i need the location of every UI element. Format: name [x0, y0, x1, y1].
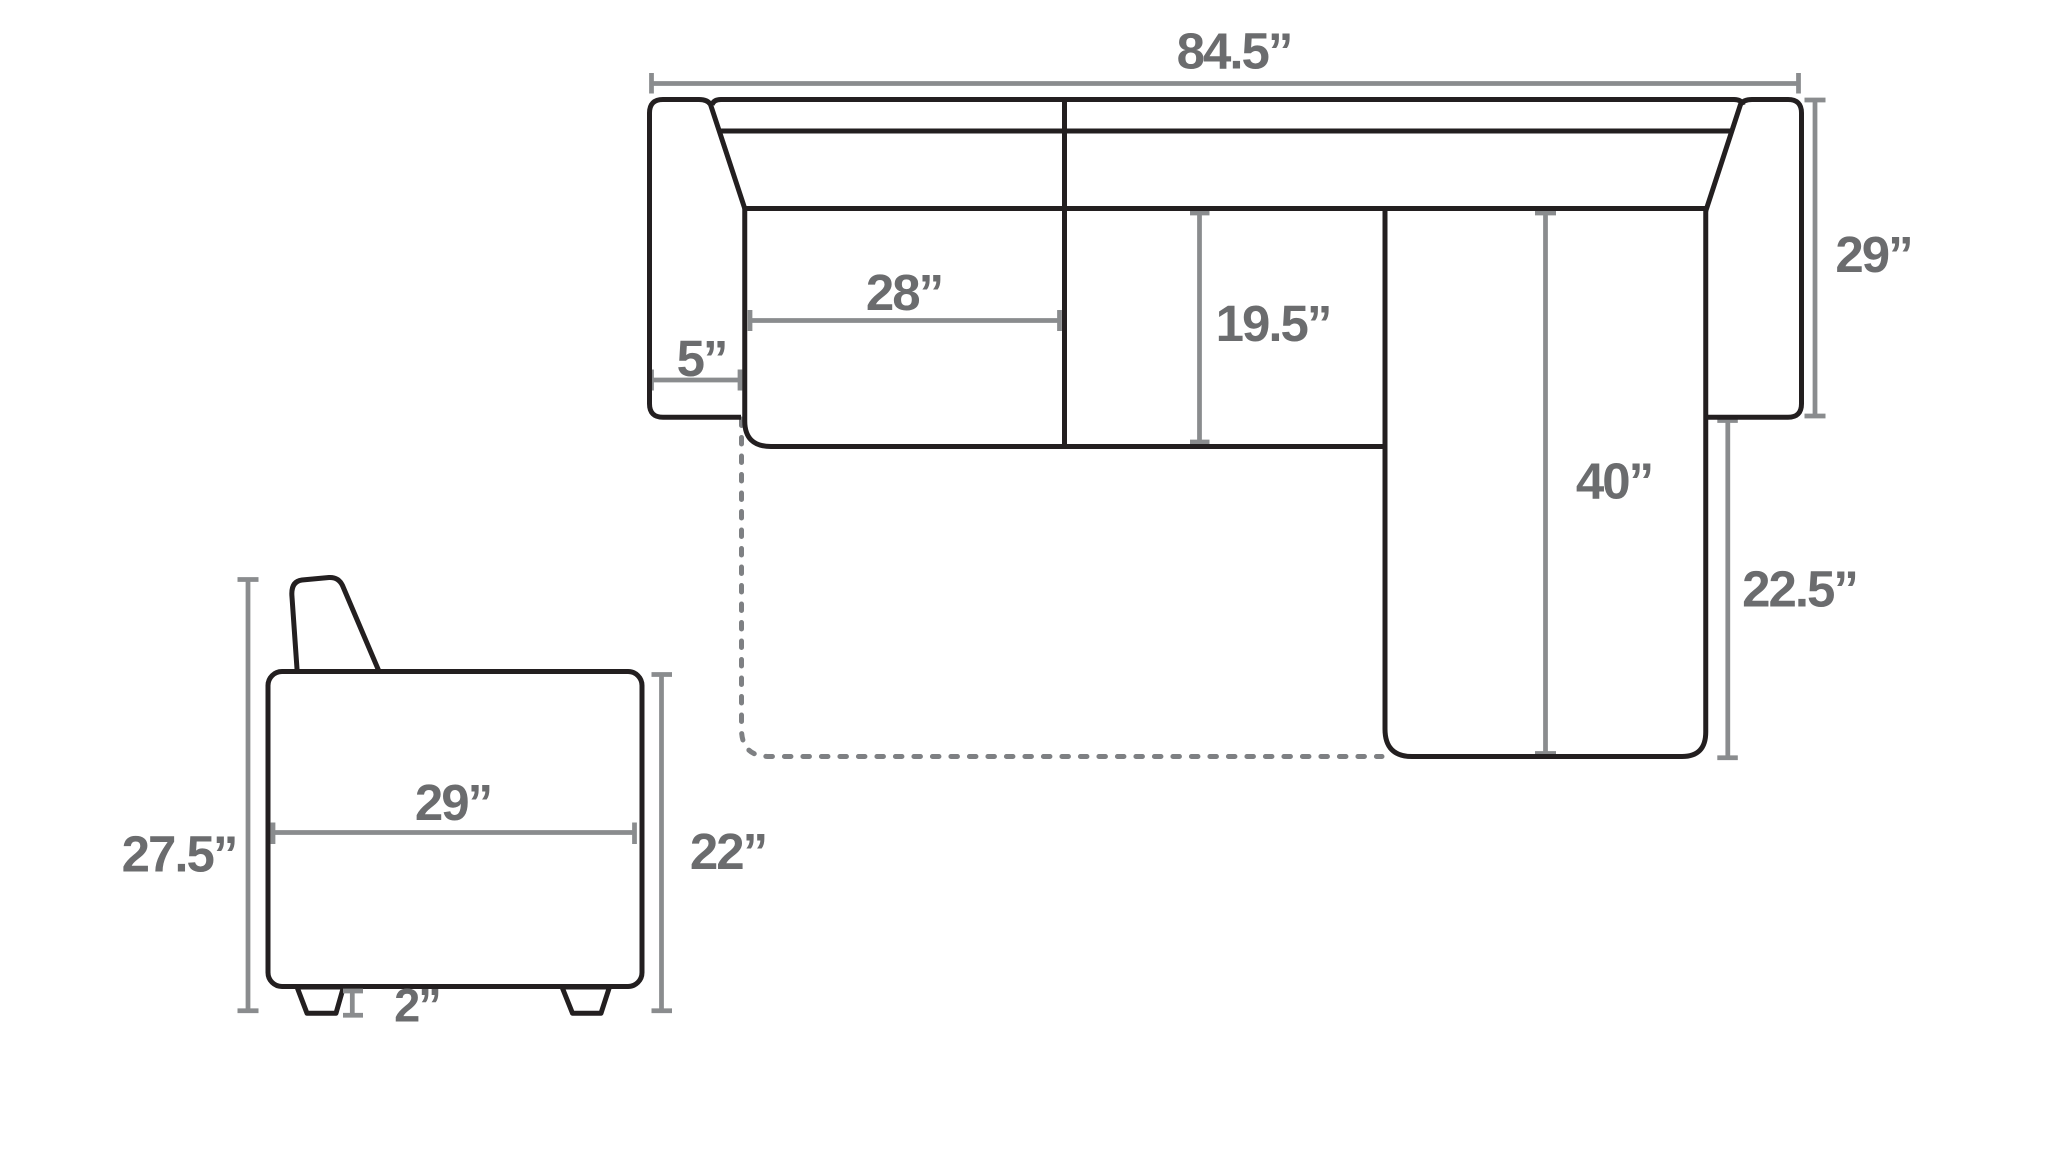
svg-text:40”: 40”	[1576, 453, 1652, 510]
svg-text:2”: 2”	[394, 979, 440, 1032]
svg-text:19.5”: 19.5”	[1216, 295, 1331, 352]
svg-text:29”: 29”	[415, 774, 491, 831]
svg-text:22.5”: 22.5”	[1742, 561, 1857, 618]
svg-text:5”: 5”	[677, 330, 727, 387]
svg-text:84.5”: 84.5”	[1177, 23, 1292, 80]
svg-text:29”: 29”	[1835, 226, 1911, 283]
svg-text:27.5”: 27.5”	[122, 826, 237, 883]
svg-text:28”: 28”	[866, 264, 942, 321]
svg-text:22”: 22”	[690, 823, 766, 880]
